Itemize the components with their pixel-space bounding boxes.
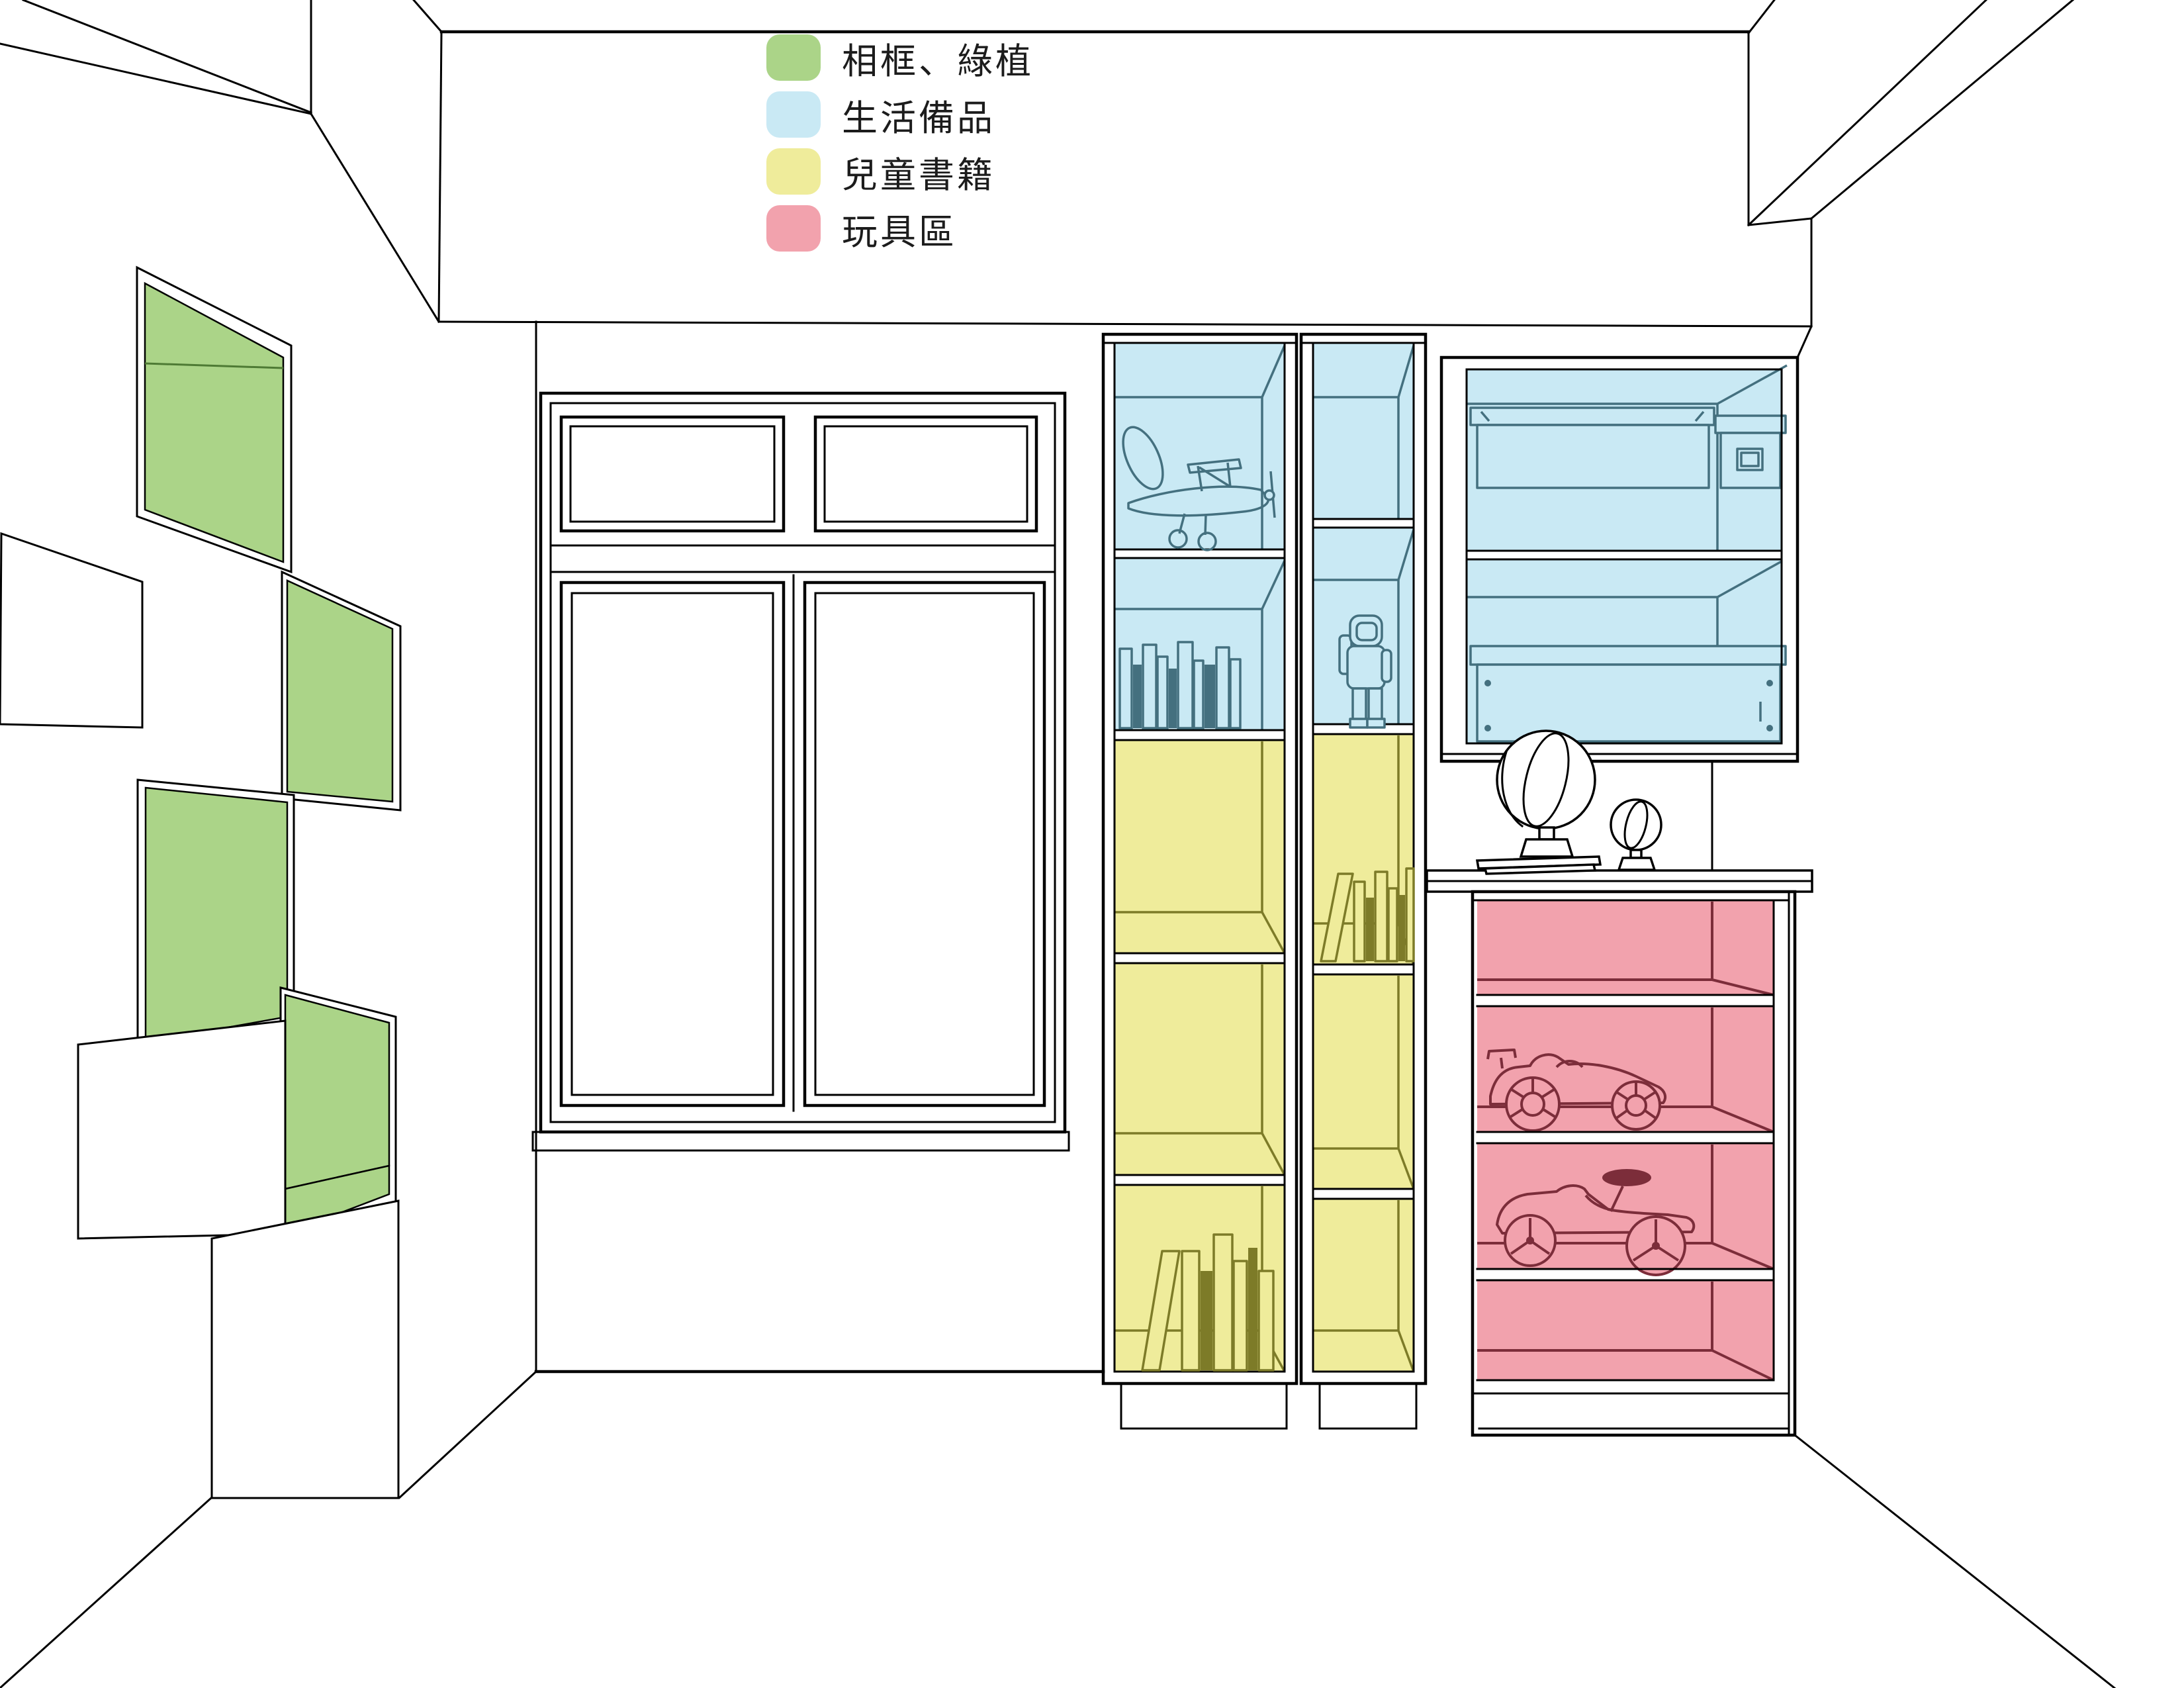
- astronaut-boot: [1367, 719, 1385, 727]
- legend-label-pink: 玩具區: [842, 203, 957, 255]
- right-beam-edge-1: [1749, 0, 1986, 225]
- book-spine: [1178, 642, 1193, 728]
- window-pane-right-inner: [815, 593, 1034, 1095]
- window-pane-right: [805, 583, 1044, 1105]
- window-transom-pane-right-inner: [825, 426, 1027, 522]
- storage-box-lid-2: [1715, 416, 1786, 433]
- window-sill: [533, 1132, 1069, 1150]
- right-beam-edge-2: [1811, 0, 2073, 218]
- window-transom-pane-left-inner: [570, 426, 774, 522]
- room-plan-page: 相框、綠植 生活備品 兒童書籍 玩具區: [0, 0, 2184, 1688]
- astronaut-leg: [1353, 688, 1366, 722]
- book-spine: [1230, 659, 1240, 728]
- airplane-prop-hub: [1265, 491, 1274, 500]
- window-outer-frame: [541, 393, 1065, 1132]
- book-spine: [1234, 1261, 1247, 1370]
- book-spine: [1133, 665, 1142, 728]
- book-spine: [1366, 898, 1374, 961]
- globe-large-base: [1521, 839, 1572, 857]
- window-transom-pane-left: [561, 417, 784, 531]
- book-spine: [1388, 888, 1397, 961]
- globe-small: [1611, 800, 1661, 850]
- legend: 相框、綠植 生活備品 兒童書籍 玩具區: [766, 34, 1034, 262]
- box-rivet: [1766, 725, 1773, 731]
- book-spine: [1120, 649, 1132, 728]
- book-spine: [1201, 1271, 1212, 1370]
- globe-small-base: [1619, 858, 1655, 870]
- beam-top-edge: [23, 0, 311, 113]
- storage-box-body-3: [1477, 665, 1780, 741]
- book-spine: [1158, 657, 1167, 728]
- legend-row-green: 相框、綠植: [766, 34, 1034, 81]
- legend-row-blue: 生活備品: [766, 91, 1034, 138]
- astronaut-torso: [1347, 646, 1385, 688]
- bulkhead-right-step: [1749, 32, 1811, 326]
- shelf-box-4-green-back: [285, 995, 389, 1189]
- box-rivet: [1766, 680, 1773, 686]
- bookshelf-cell-blue-a1: [1115, 343, 1285, 549]
- right-floor-line: [1795, 1435, 2115, 1688]
- legend-swatch-blue: [766, 91, 821, 138]
- bookshelf-b-plinth: [1320, 1383, 1416, 1429]
- room-drawing: [0, 0, 2184, 1688]
- box-rivet: [1484, 680, 1491, 686]
- legend-label-yellow: 兒童書籍: [842, 146, 995, 198]
- book-spine: [1194, 661, 1203, 728]
- bulkhead-left-edge: [439, 32, 441, 322]
- legend-label-green: 相框、綠植: [842, 32, 1034, 84]
- window-pane-left-inner: [572, 593, 773, 1095]
- book-spine: [1259, 1271, 1273, 1370]
- bulkhead-bottom-edge: [439, 322, 1811, 326]
- globe-large-stem: [1539, 827, 1554, 839]
- beam-bottom-edge: [0, 44, 311, 114]
- legend-label-blue: 生活備品: [842, 89, 995, 141]
- book-spine: [1143, 645, 1156, 728]
- bulkhead-left-slant: [414, 0, 441, 32]
- book-spine: [1398, 895, 1405, 961]
- toy-cabinet-pink: [1473, 892, 1795, 1435]
- shelf-box-3-green: [146, 788, 287, 1042]
- legend-swatch-green: [766, 34, 821, 81]
- globe-small-stem: [1631, 850, 1641, 858]
- beam-right-top-slant: [1749, 0, 1774, 33]
- bookshelf-cell-yellow-a4: [1115, 963, 1285, 1175]
- window-pane-left: [561, 583, 784, 1105]
- left-wall-shelves: [0, 267, 400, 1498]
- book-spine: [1406, 868, 1414, 961]
- window-mullions: [551, 545, 1055, 1111]
- bookshelf-a-plinth: [1121, 1383, 1287, 1429]
- astronaut-leg: [1369, 688, 1382, 722]
- wall-cabinet-blue: [1441, 357, 1797, 761]
- book-spine: [1248, 1248, 1257, 1370]
- left-wall-top-edge: [311, 114, 439, 322]
- shelf-box-white-1: [0, 534, 142, 727]
- box-rivet: [1484, 725, 1491, 731]
- ceiling-beam: [0, 0, 2073, 357]
- shelf-box-2-green: [287, 581, 392, 802]
- window-inner-frame: [551, 403, 1055, 1122]
- window-transom-pane-right: [815, 417, 1036, 531]
- storage-box-lid-3: [1471, 646, 1786, 665]
- shelf-box-white-2: [78, 1021, 285, 1239]
- book-spine: [1216, 647, 1229, 728]
- bookshelf-cell-yellow-a3: [1115, 740, 1285, 953]
- window: [533, 393, 1069, 1150]
- right-column-slant: [1797, 326, 1811, 357]
- book-spine: [1375, 872, 1387, 961]
- book-spine: [1205, 665, 1215, 728]
- ride-on-steering-wheel: [1602, 1169, 1651, 1186]
- book-spine: [1169, 669, 1177, 728]
- legend-row-yellow: 兒童書籍: [766, 148, 1034, 195]
- storage-box-body: [1477, 425, 1709, 488]
- countertop-decor: [1477, 729, 1661, 874]
- toy-cell-4: [1477, 1280, 1774, 1380]
- legend-row-pink: 玩具區: [766, 205, 1034, 252]
- astronaut-arm: [1382, 650, 1391, 682]
- storage-box-lid: [1471, 408, 1714, 425]
- book-spine: [1214, 1235, 1232, 1370]
- legend-swatch-yellow: [766, 148, 821, 195]
- book-spine: [1354, 882, 1365, 961]
- astronaut-boot: [1350, 719, 1367, 727]
- book-spine: [1182, 1251, 1199, 1370]
- storage-box-body-2: [1721, 433, 1780, 488]
- lower-cabinet-white: [212, 1201, 398, 1498]
- legend-swatch-pink: [766, 205, 821, 252]
